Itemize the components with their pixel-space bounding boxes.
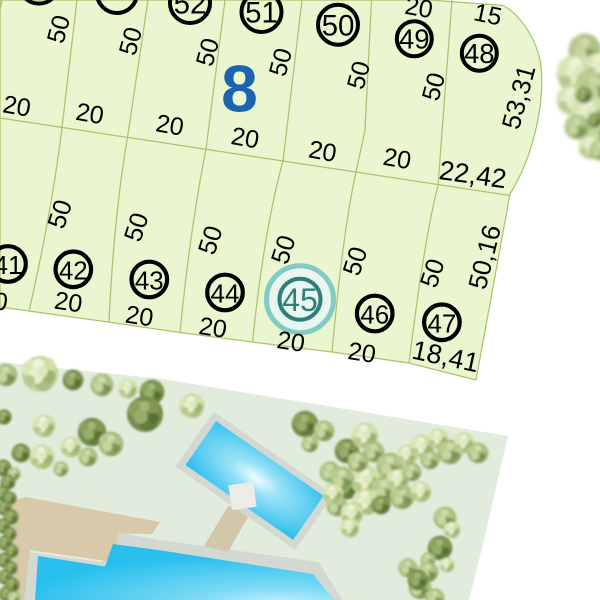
svg-text:44: 44	[211, 279, 240, 309]
svg-text:20: 20	[154, 109, 186, 141]
svg-text:20: 20	[381, 143, 413, 175]
svg-text:49: 49	[399, 24, 430, 55]
svg-text:41: 41	[0, 250, 22, 280]
svg-text:48: 48	[464, 38, 495, 69]
svg-text:46: 46	[360, 300, 389, 330]
svg-text:20: 20	[306, 135, 338, 167]
svg-text:20: 20	[229, 122, 261, 154]
svg-text:20: 20	[275, 326, 307, 358]
svg-text:20: 20	[1, 90, 33, 122]
svg-text:8: 8	[221, 52, 258, 126]
svg-text:20: 20	[123, 300, 155, 332]
svg-text:20: 20	[197, 312, 229, 344]
svg-text:42: 42	[59, 255, 88, 285]
svg-text:43: 43	[135, 266, 164, 296]
svg-text:20: 20	[52, 286, 84, 318]
svg-text:50: 50	[322, 9, 355, 42]
svg-text:20: 20	[346, 337, 378, 369]
svg-text:51: 51	[245, 0, 278, 30]
svg-text:45: 45	[282, 282, 318, 318]
svg-text:15: 15	[471, 0, 504, 32]
svg-text:47: 47	[427, 308, 456, 338]
svg-text:20: 20	[74, 98, 106, 130]
svg-text:52: 52	[174, 0, 207, 21]
